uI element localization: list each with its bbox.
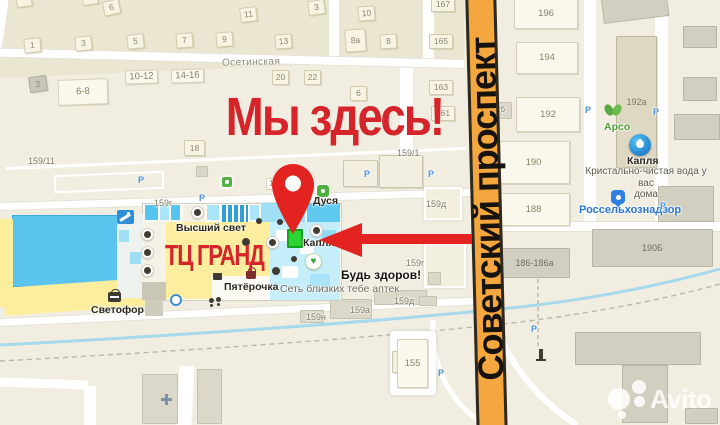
building-10: 10 (357, 5, 375, 21)
building-3: 3 (307, 0, 326, 16)
pyaterochka-basket-icon (246, 271, 256, 279)
building-number: 18 (190, 144, 199, 153)
building-14-16: 14-16 (171, 68, 204, 83)
building-number: 2 (35, 79, 41, 88)
mcell (119, 230, 129, 242)
map-shape (285, 176, 301, 192)
building (196, 166, 208, 177)
building-number: 192а (626, 98, 646, 107)
avito-logo-circle (632, 380, 646, 394)
building-number: 194 (539, 53, 555, 63)
building-190: 190 (497, 141, 570, 184)
building-number: 186-186а (515, 259, 553, 268)
building (379, 155, 423, 188)
building (142, 374, 178, 424)
monument-icon (539, 349, 543, 359)
building-9: 9 (215, 31, 233, 47)
map-label: 159/1 (397, 148, 420, 158)
building-22: 22 (304, 70, 321, 85)
poi-label-svetofor: Светофор (91, 304, 144, 316)
building-number: 192 (540, 110, 556, 120)
building-number: 7 (182, 36, 187, 45)
road-bl-vertical-2 (176, 366, 194, 425)
avito-watermark: Avito (608, 380, 718, 422)
poi-label-vysshiy-svet: Высший свет (176, 222, 246, 234)
mcell (142, 282, 166, 300)
map-label: 159г (154, 198, 172, 208)
street-label-osetinskaya: Осетинская (222, 56, 281, 69)
building-18: 18 (184, 140, 205, 156)
avito-logo-circle (634, 396, 645, 407)
map-label: 159г (406, 258, 424, 268)
map-label: 159/11 (28, 156, 55, 166)
building (197, 369, 222, 424)
building-2: 2 (28, 75, 48, 93)
building-number: 196 (538, 9, 554, 19)
building-10-12: 10-12 (125, 69, 158, 84)
map-label: Р (438, 368, 444, 378)
plant-icon (604, 102, 622, 118)
mcell (207, 205, 219, 220)
tree-icon (141, 246, 154, 259)
building-number: 14-16 (175, 71, 200, 81)
building-number: 165 (434, 37, 448, 46)
building-3: 3 (74, 35, 92, 52)
building-number: 3 (314, 3, 320, 12)
building (343, 160, 378, 187)
building-number: 1 (30, 41, 36, 50)
map-shape (272, 164, 314, 234)
mcell (171, 205, 180, 220)
avito-logo-circle (618, 411, 626, 419)
map-label: Кристально-чистая вода у вас дома (581, 166, 711, 201)
building-8а: 8а (344, 28, 367, 52)
building (575, 332, 701, 365)
building-number: 20 (276, 73, 285, 82)
building-number: 190 (526, 158, 542, 168)
building (674, 114, 720, 140)
map-label: Р (653, 107, 659, 117)
map-label: Р (531, 324, 537, 334)
mcell (222, 205, 248, 222)
we-are-here-headline: Мы здесь! (213, 91, 455, 145)
map-label: 159д (426, 199, 446, 209)
poi-label-bud-zdorov: Будь здоров! (341, 269, 421, 283)
eco-icon (222, 177, 232, 187)
people-icon (208, 297, 222, 308)
recycle-icon (170, 294, 182, 306)
building-1: 1 (23, 37, 41, 54)
map-label: Р (138, 175, 144, 185)
poi-label-pyaterochka: Пятёрочка (224, 281, 278, 293)
building-number: 10-12 (129, 72, 154, 82)
map-label: Сеть близких тебе аптек (280, 283, 399, 295)
avito-brand-text: Avito (650, 384, 712, 415)
mcell (130, 252, 141, 264)
map-label: 159н (306, 312, 326, 322)
building-number: 6 (108, 3, 114, 12)
building-number: 3 (81, 39, 87, 48)
building-190Б: 190Б (592, 229, 713, 267)
building-6-8: 6-8 (58, 78, 109, 106)
tree-icon (266, 236, 279, 249)
map-label: Р (199, 193, 205, 203)
mall-name-label: ТЦ ГРАНД (165, 241, 264, 270)
location-pin-icon (271, 163, 315, 235)
building-number: 190Б (642, 244, 663, 253)
building-number: 8а (350, 36, 360, 45)
tree-icon (141, 228, 154, 241)
building-number: 188 (526, 205, 542, 215)
building (683, 77, 717, 101)
building-5: 5 (126, 33, 144, 50)
building-194: 194 (516, 42, 578, 74)
building-number: 5 (133, 37, 139, 46)
arrow-head-icon (319, 223, 362, 257)
map-label: Р (660, 201, 666, 211)
building-167: 167 (431, 0, 455, 12)
building-number: 22 (308, 73, 317, 82)
map-label: 159д (394, 296, 414, 306)
tree-icon (141, 264, 154, 277)
shop-icon (272, 267, 280, 275)
map-label: Р (585, 105, 591, 115)
building-number: 167 (436, 0, 450, 9)
mall-blue-roof (12, 215, 118, 287)
building-155: 155 (397, 339, 428, 388)
building-20: 20 (272, 70, 289, 85)
tree-icon (191, 206, 204, 219)
avito-logo-circle (608, 388, 630, 410)
building (683, 26, 717, 48)
road-bl-vertical (84, 386, 96, 425)
map-label: Р (364, 169, 370, 179)
building-number: 10 (361, 9, 371, 18)
building-196: 196 (514, 0, 578, 29)
building-number: 6-8 (76, 87, 90, 97)
medical-cross-icon (161, 394, 172, 405)
arrow-tail (360, 234, 472, 244)
poi-label-arso: Арсо (604, 121, 630, 133)
building-number: 11 (244, 10, 254, 20)
escalator-icon (117, 210, 134, 224)
mcell (282, 266, 298, 278)
svetofor-shop-icon (108, 292, 121, 302)
building-192: 192 (516, 97, 580, 132)
map-label: 159а (350, 305, 370, 315)
building-165: 165 (429, 34, 453, 49)
building-number: 8 (386, 37, 391, 46)
building-number: 9 (222, 35, 227, 44)
building-8: 8 (379, 33, 397, 49)
street-name-sovetsky-prospekt: Советский проспект (462, 37, 513, 381)
map-screenshot: Советский проспект Мы здесь! ТЦ ГРАНД Av… (0, 0, 720, 425)
road-vertical-1 (329, 0, 339, 62)
building-number: 13 (278, 37, 288, 46)
hanger-icon (291, 256, 297, 262)
building-7: 7 (175, 32, 193, 48)
poi-label-dusya: Дуся (313, 195, 338, 207)
map-label: Р (428, 169, 434, 179)
building-11: 11 (239, 6, 258, 23)
building-number: 155 (405, 359, 421, 369)
building (419, 296, 437, 306)
water-drop-icon (629, 134, 651, 156)
building (428, 272, 441, 285)
hanger-icon (256, 218, 262, 224)
suitcase-icon (213, 273, 222, 280)
building-13: 13 (274, 33, 292, 49)
